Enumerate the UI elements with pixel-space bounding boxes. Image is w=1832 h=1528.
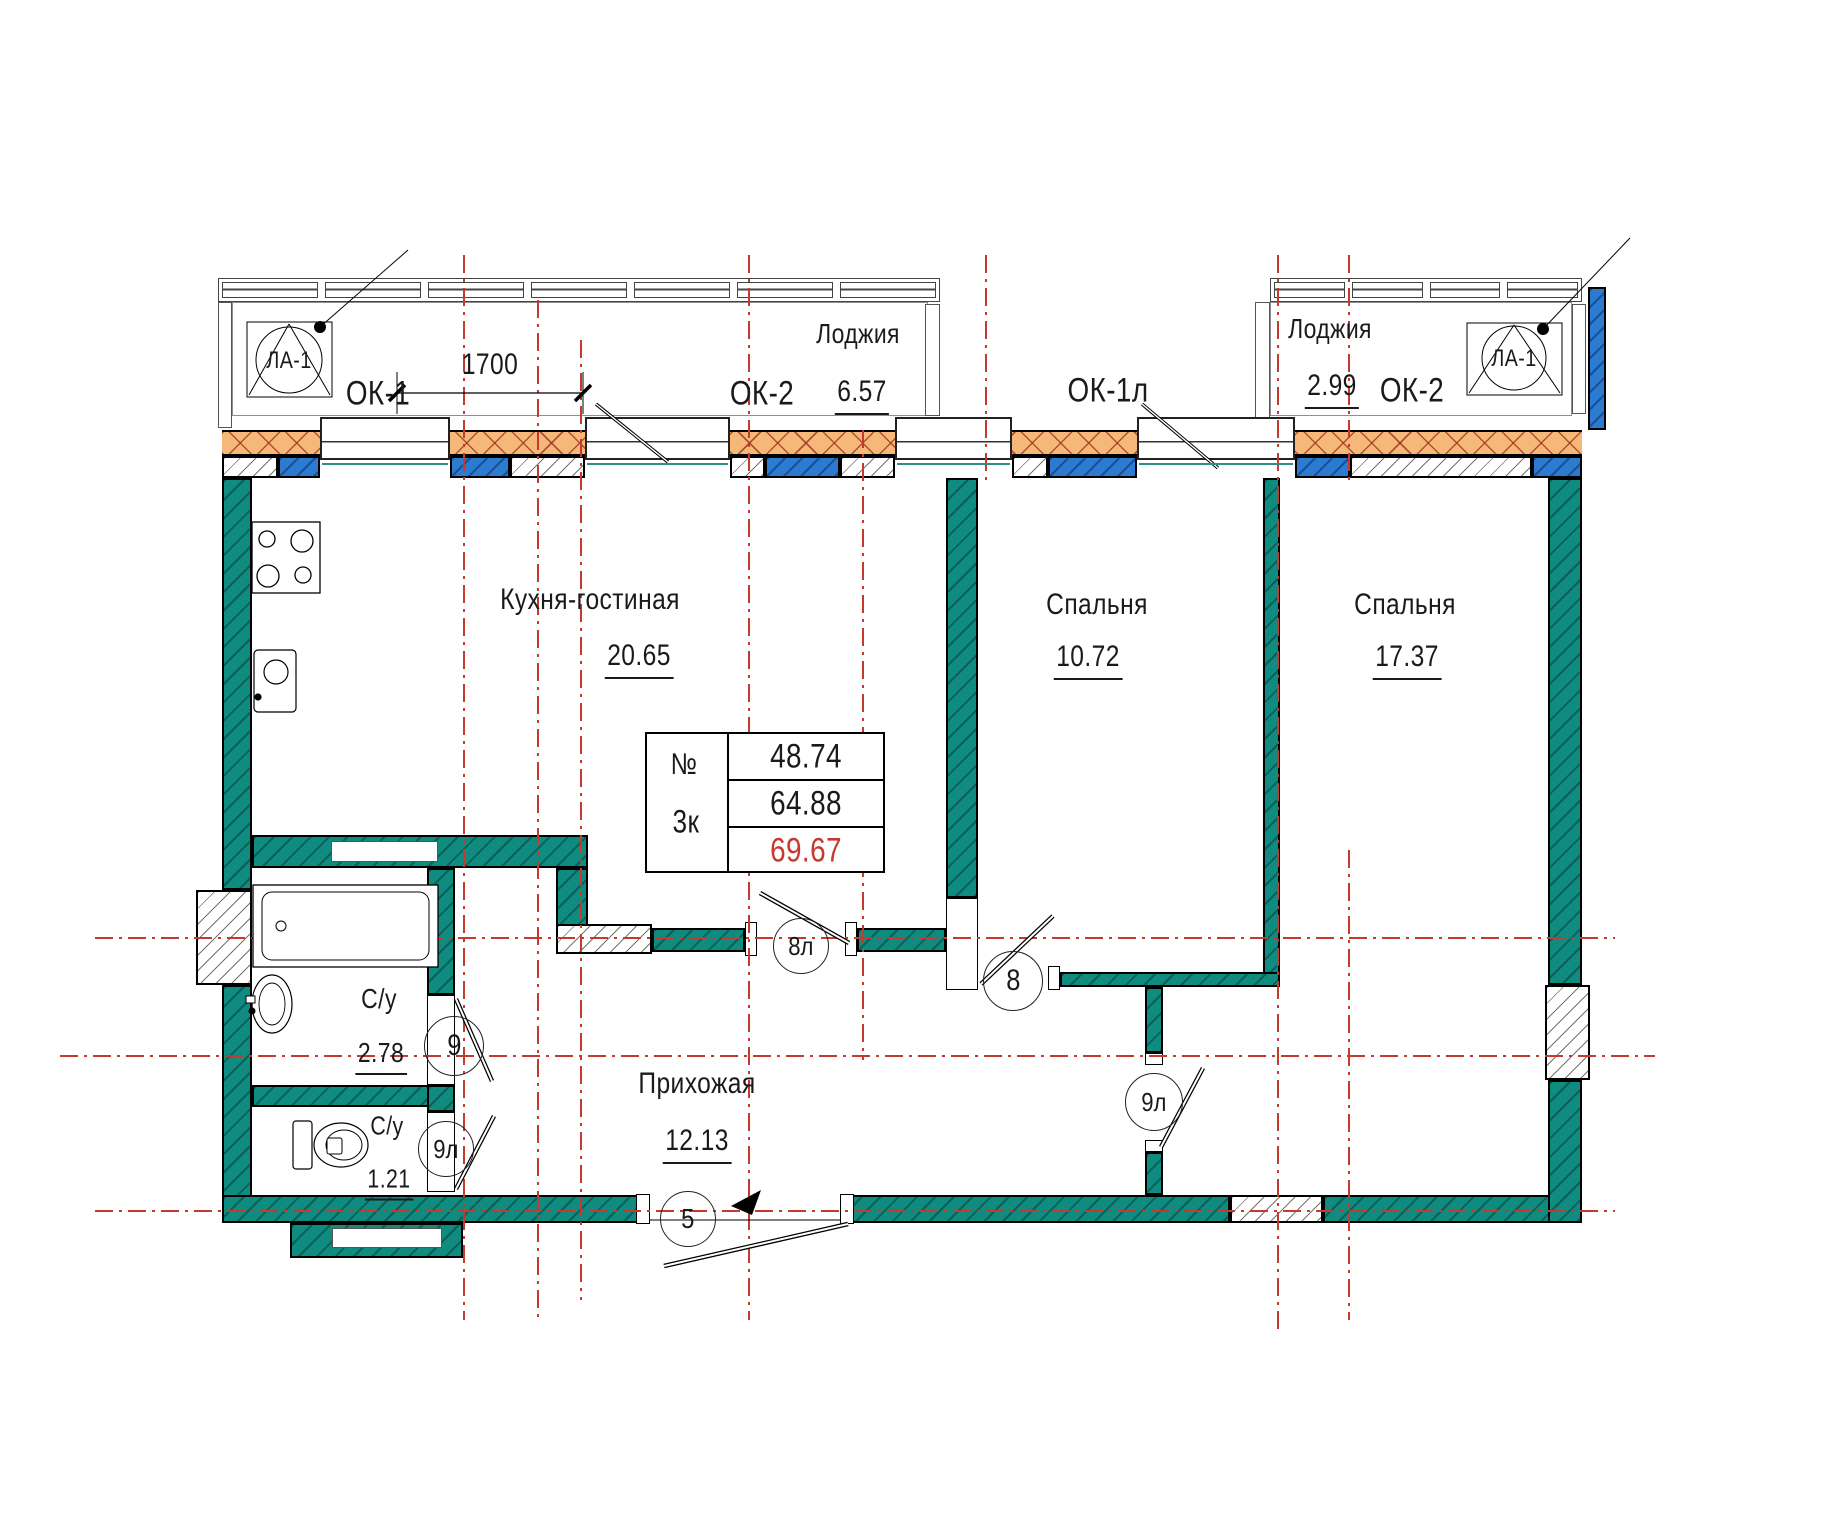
room-label-bath2: С/у [370, 1111, 403, 1142]
room-label-bath1: С/у [361, 983, 397, 1015]
table-floor-area: 64.88 [770, 785, 842, 824]
window-label-ok2-right: ОК-2 [1380, 372, 1444, 411]
room-area-loggia-left: 6.57 [835, 375, 889, 415]
stove-icon [252, 522, 320, 593]
window-label-ok1: ОК-1 [346, 375, 410, 414]
door-circle-entrance: 5 [660, 1191, 716, 1247]
room-label-loggia-left: Лоджия [816, 318, 900, 350]
toilet-icon [293, 1121, 368, 1169]
marker-label-la1-right: ЛА-1 [1491, 345, 1536, 373]
room-label-kitchen: Кухня-гостиная [500, 583, 680, 617]
table-line [727, 779, 883, 781]
room-label-hallway: Прихожая [638, 1067, 755, 1101]
marker-label-la1-left: ЛА-1 [266, 347, 311, 375]
door-circle-bedroom2: 9л [1125, 1073, 1183, 1131]
room-area-hallway: 12.13 [663, 1124, 732, 1164]
room-label-loggia-right: Лоджия [1288, 313, 1372, 345]
window-label-ok1l: ОК-1л [1067, 372, 1148, 411]
kitchen-sink-icon [254, 650, 296, 712]
door-circle-bedroom1: 8 [983, 951, 1043, 1011]
door-circle-bath2: 9л [418, 1121, 474, 1177]
table-divider [727, 734, 729, 871]
window-swing-mark [596, 404, 1218, 468]
room-area-bath2: 1.21 [365, 1164, 413, 1201]
table-living-area: 48.74 [770, 738, 842, 777]
room-area-kitchen: 20.65 [605, 639, 674, 679]
window-label-ok2-left: ОК-2 [730, 375, 794, 414]
table-apartment-type: 3к [673, 804, 700, 841]
room-area-bath1: 2.78 [355, 1037, 406, 1075]
door-circle-bath1: 9 [424, 1016, 484, 1076]
drawing-overlay [0, 0, 1832, 1528]
door-circle-living: 8л [773, 918, 829, 974]
room-label-bedroom1: Спальня [1046, 588, 1148, 622]
room-area-bedroom2: 17.37 [1373, 640, 1442, 680]
bath-sink-icon [246, 975, 292, 1033]
table-number-label: № [671, 748, 698, 782]
room-area-bedroom1: 10.72 [1054, 640, 1123, 680]
room-label-bedroom2: Спальня [1354, 588, 1456, 622]
door-leaf [456, 893, 1203, 1266]
table-line [727, 826, 883, 828]
dimension-label: 1700 [462, 348, 518, 382]
table-total-area: 69.67 [770, 832, 842, 871]
room-area-loggia-right: 2.99 [1305, 369, 1359, 409]
bathtub-icon [253, 885, 438, 967]
floor-plan: № 3к 48.74 64.88 69.67 Кухня-гостиная 20… [0, 0, 1832, 1528]
